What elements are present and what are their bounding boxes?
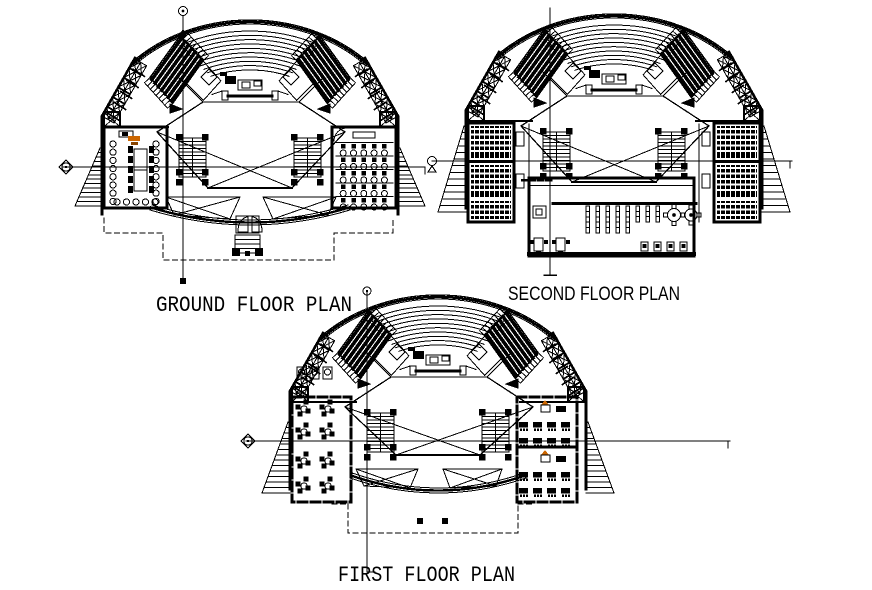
svg-text:GROUND FLOOR PLAN: GROUND FLOOR PLAN bbox=[156, 293, 352, 318]
svg-text:SECOND FLOOR PLAN: SECOND FLOOR PLAN bbox=[508, 283, 680, 305]
svg-text:FIRST FLOOR PLAN: FIRST FLOOR PLAN bbox=[338, 563, 515, 588]
